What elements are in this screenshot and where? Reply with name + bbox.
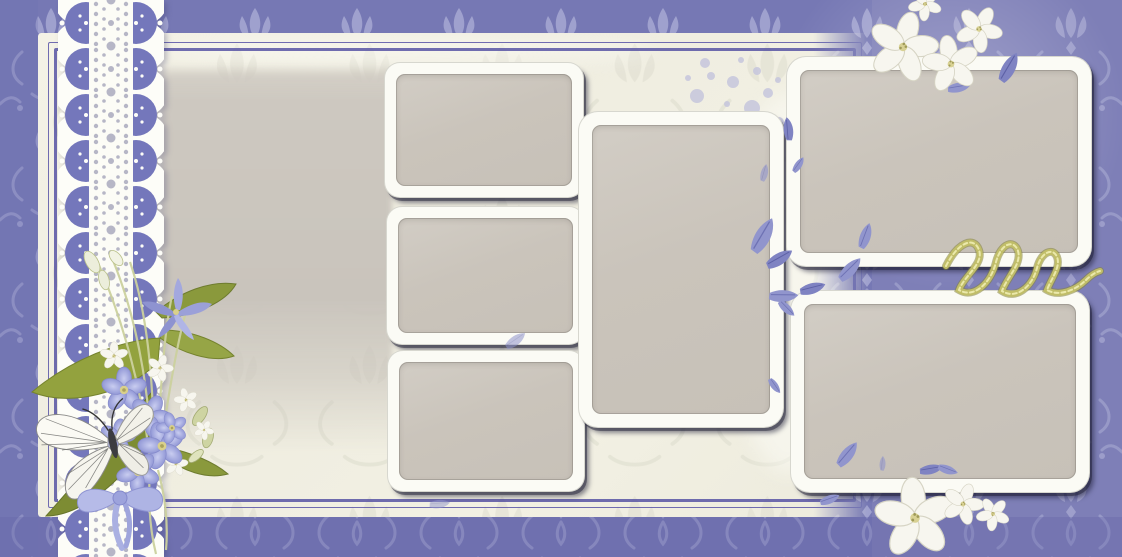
photo-slot: [399, 362, 573, 480]
photo-slot: [398, 218, 573, 333]
photo-mat-large[interactable]: [160, 64, 392, 468]
photo-frame-bottom-right[interactable]: [790, 290, 1090, 493]
photo-frame-top-right[interactable]: [786, 56, 1092, 267]
photo-frame-middle-3[interactable]: [387, 350, 585, 492]
scrapbook-page: [0, 0, 1122, 557]
photo-slot: [800, 70, 1078, 253]
photo-frame-middle-1[interactable]: [384, 62, 584, 198]
photo-frame-center-large[interactable]: [578, 111, 784, 428]
photo-slot: [396, 74, 572, 186]
photo-slot: [804, 304, 1076, 479]
photo-slot: [592, 125, 770, 414]
white-lace-ribbon: [58, 0, 164, 557]
photo-frame-middle-2[interactable]: [386, 206, 585, 345]
